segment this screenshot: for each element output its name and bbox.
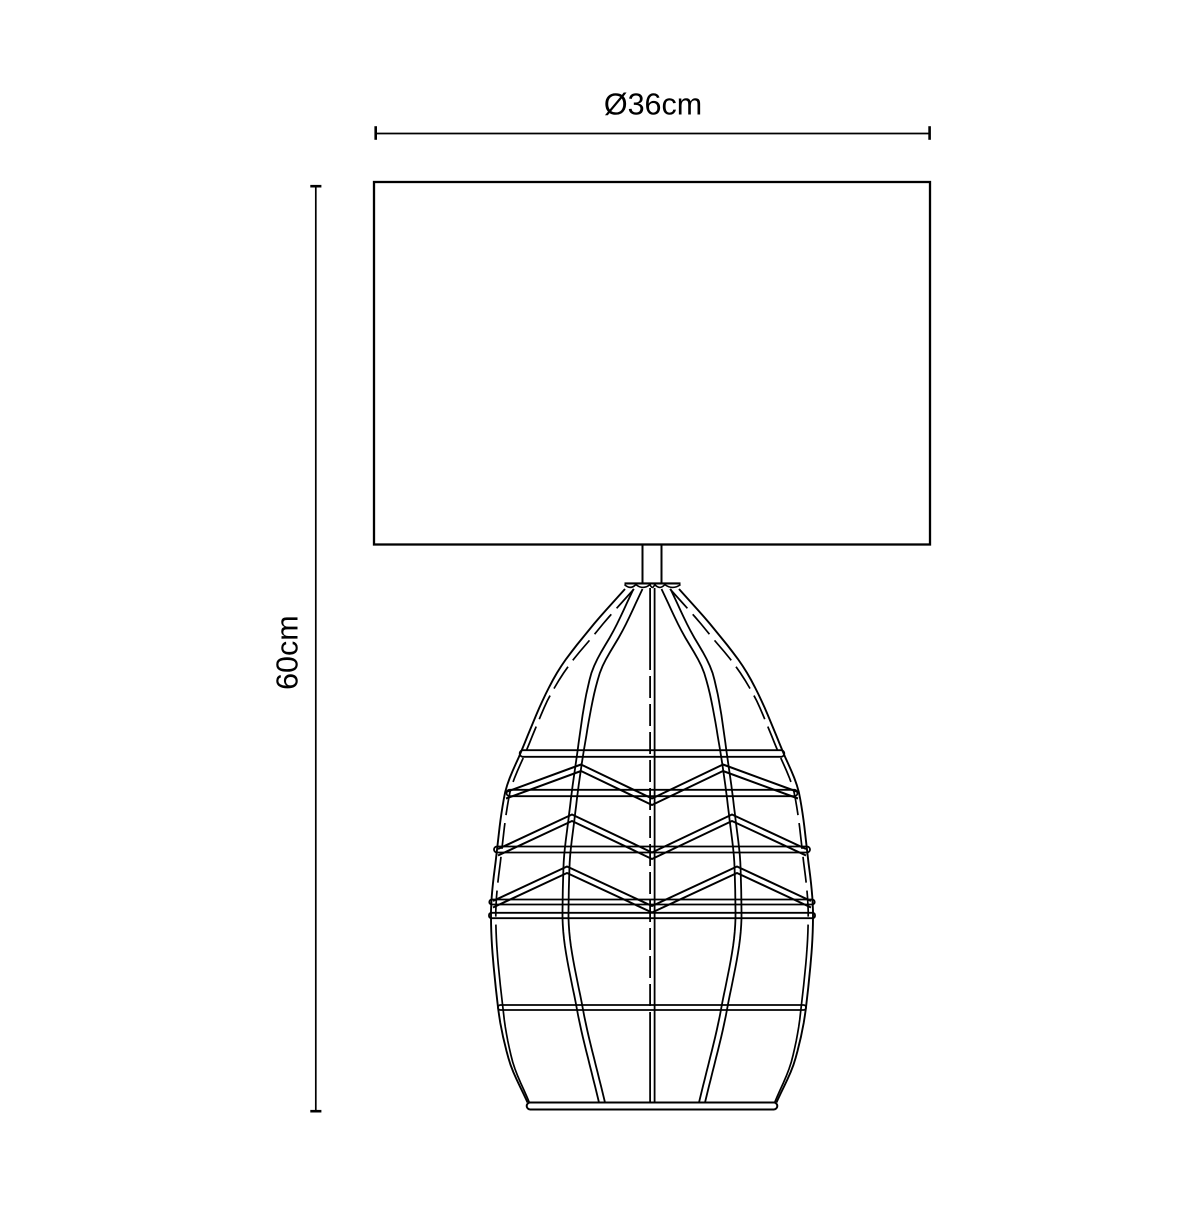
svg-text:60cm: 60cm <box>271 615 305 690</box>
svg-text:Ø36cm: Ø36cm <box>604 88 702 122</box>
